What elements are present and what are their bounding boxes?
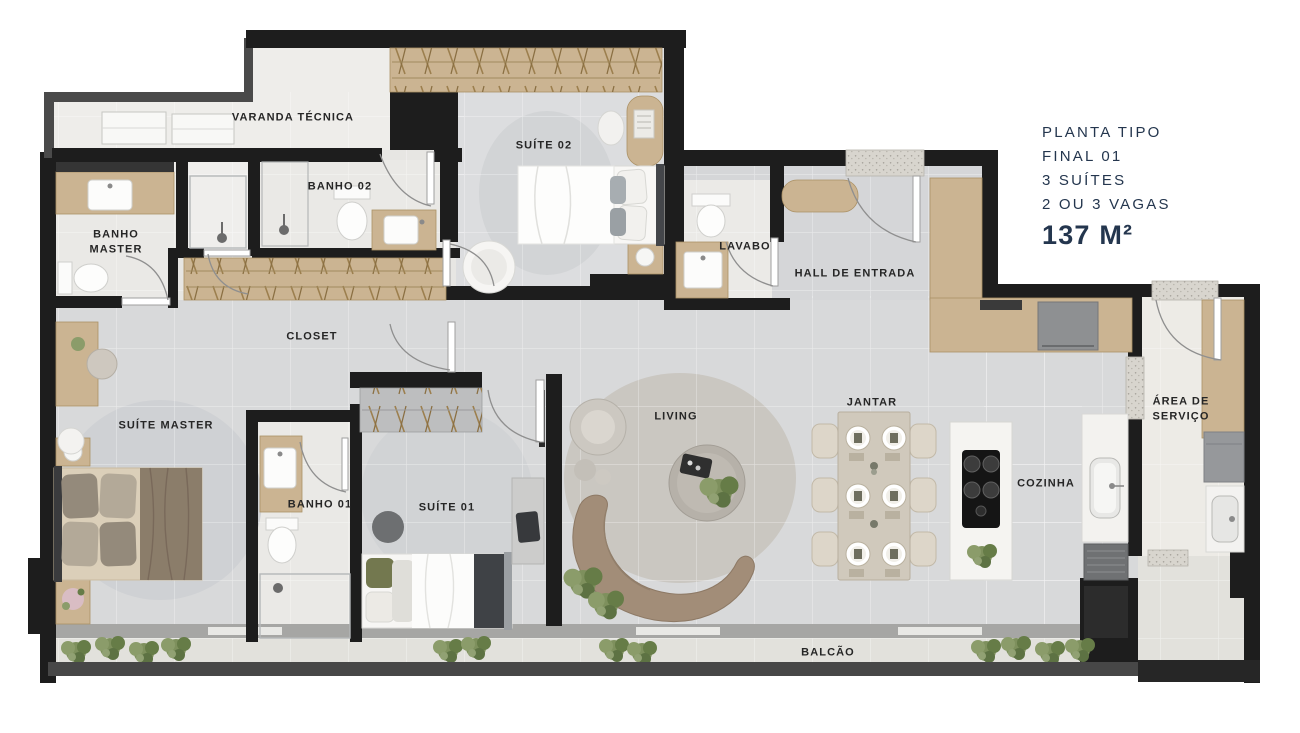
kitchen-island	[950, 422, 1012, 580]
suite-01-bed	[362, 552, 512, 630]
built-in-oven	[1038, 302, 1098, 350]
plan-type-text: PLANTA TIPO	[1042, 124, 1171, 141]
suite-02-desk-chair	[598, 111, 624, 145]
kitchen-appliance-block	[1084, 586, 1128, 638]
suite-01-pouf	[372, 511, 404, 543]
service-sink-counter	[1206, 486, 1244, 552]
floor-plan-canvas: VARANDA TÉCNICA BANHO 02 SUÍTE 02 LAVABO…	[0, 0, 1300, 733]
plan-area-text: 137 M²	[1042, 220, 1171, 251]
hall-bench	[782, 180, 858, 212]
suite-01-wardrobe	[360, 388, 482, 432]
suite-02-desk-book	[634, 110, 654, 138]
service-area-fixtures	[1204, 432, 1244, 552]
kitchen-tall-cabinet	[930, 178, 982, 300]
balcony-rail	[48, 660, 1260, 682]
suite-master-chair	[87, 349, 117, 379]
closet-wardrobe	[184, 258, 446, 300]
living-coffee-table	[669, 445, 745, 521]
kitchen-dishwasher	[1084, 544, 1128, 580]
service-area-cabinet	[1202, 300, 1244, 438]
suite-02-wardrobe	[390, 48, 662, 92]
kitchen-sink-counter	[1082, 414, 1128, 542]
suite-master-bed	[54, 466, 202, 582]
dining-set	[812, 412, 936, 580]
floor-plan-graphic	[0, 0, 1300, 733]
plan-suites-text: 3 SUÍTES	[1042, 172, 1171, 189]
plan-final-text: FINAL 01	[1042, 148, 1171, 165]
plan-vagas-text: 2 OU 3 VAGAS	[1042, 196, 1171, 213]
suite-master-nightstand-bottom	[56, 580, 90, 624]
kitchen-counter-run	[930, 298, 1132, 352]
suite-01-laptop	[515, 511, 540, 543]
washer	[1204, 432, 1244, 482]
title-block: PLANTA TIPO FINAL 01 3 SUÍTES 2 OU 3 VAG…	[1042, 124, 1171, 251]
balcony-window-track	[56, 624, 1082, 638]
banho-master-backsplash	[56, 162, 174, 172]
suite-master-stool	[58, 428, 84, 454]
